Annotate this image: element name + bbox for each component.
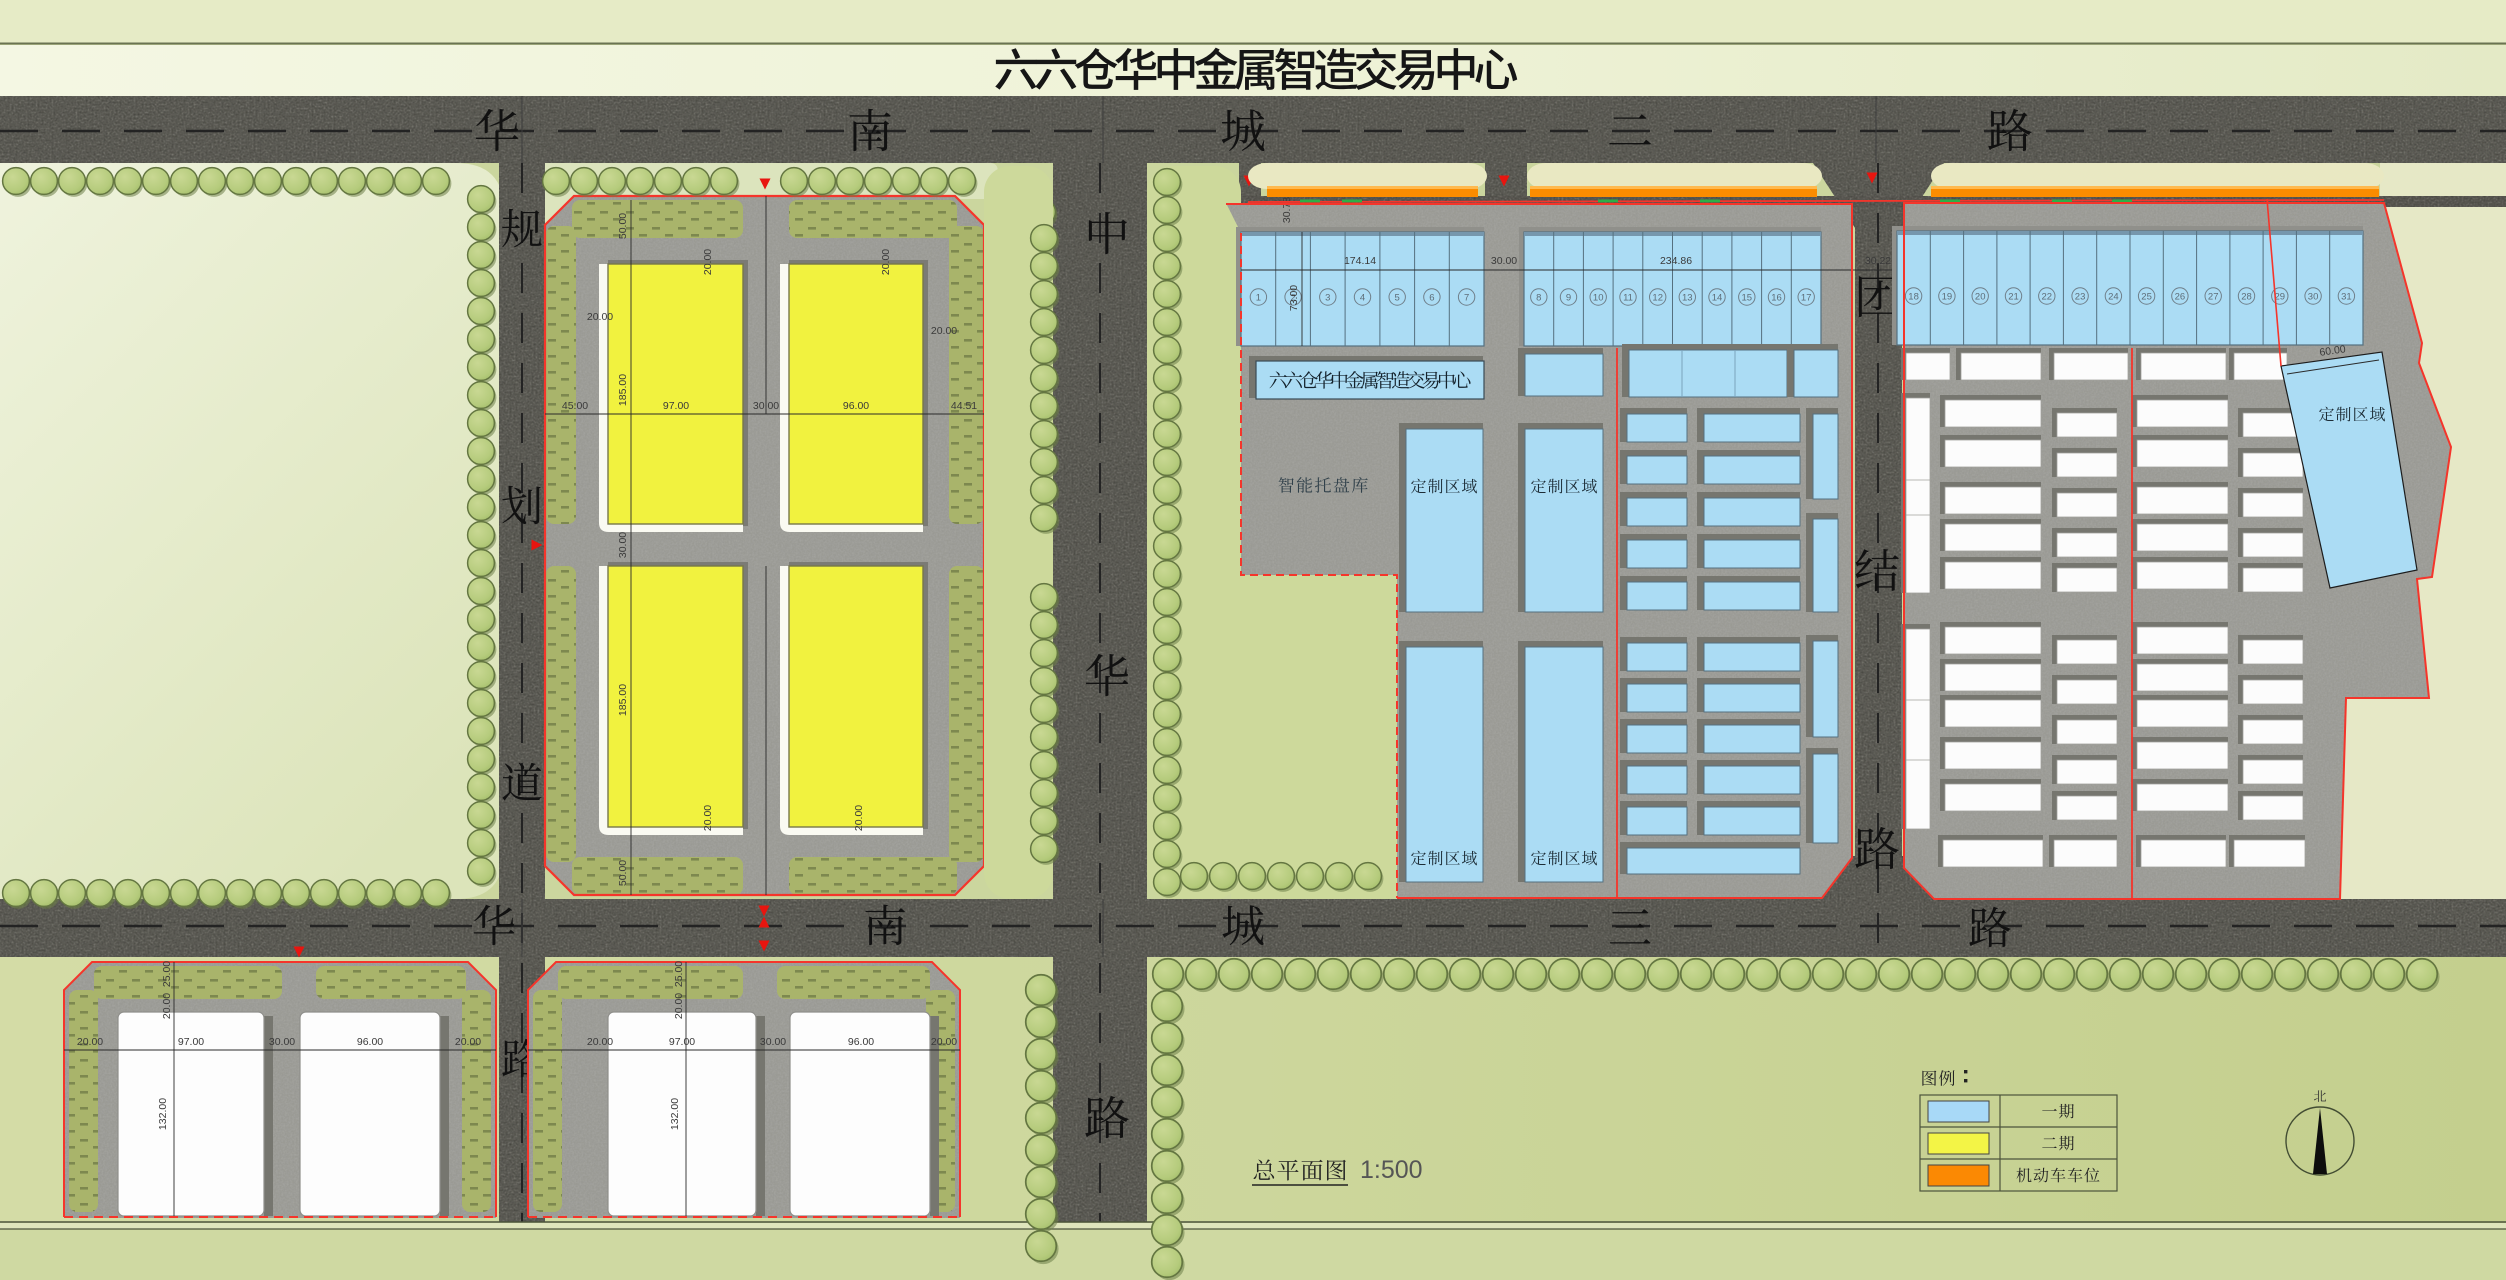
svg-text:30.22: 30.22 [1865, 255, 1891, 267]
svg-text:8: 8 [1536, 292, 1541, 303]
svg-text:25.00: 25.00 [161, 961, 173, 987]
svg-text:14: 14 [1712, 292, 1723, 303]
svg-text:20.00: 20.00 [455, 1036, 481, 1048]
svg-text:20.00: 20.00 [587, 311, 613, 323]
svg-text:20.00: 20.00 [702, 805, 714, 831]
svg-text:22: 22 [2042, 291, 2053, 302]
svg-text:21: 21 [2008, 291, 2019, 302]
svg-text:96.00: 96.00 [357, 1036, 383, 1048]
svg-text:97.00: 97.00 [663, 400, 689, 412]
svg-text:20.00: 20.00 [161, 993, 173, 1019]
svg-text:50.00: 50.00 [617, 213, 629, 239]
svg-text:185.00: 185.00 [617, 374, 629, 406]
svg-text:174.14: 174.14 [1344, 255, 1376, 267]
svg-text:132.00: 132.00 [157, 1098, 169, 1130]
svg-text:30.00: 30.00 [269, 1036, 295, 1048]
svg-text:30: 30 [2308, 291, 2319, 302]
svg-text:185.00: 185.00 [617, 684, 629, 716]
svg-text:30.00: 30.00 [1491, 255, 1517, 267]
svg-text:234.86: 234.86 [1660, 255, 1692, 267]
svg-text:24: 24 [2108, 291, 2119, 302]
svg-text:20: 20 [1975, 291, 1986, 302]
svg-text:15: 15 [1742, 292, 1753, 303]
svg-text:30.00: 30.00 [617, 532, 629, 558]
svg-text:96.00: 96.00 [843, 400, 869, 412]
svg-text:97.00: 97.00 [178, 1036, 204, 1048]
svg-text:132.00: 132.00 [669, 1098, 681, 1130]
svg-text:28: 28 [2241, 291, 2252, 302]
svg-text:9: 9 [1566, 292, 1571, 303]
svg-text:30.00: 30.00 [760, 1036, 786, 1048]
svg-text:20.00: 20.00 [931, 325, 957, 337]
svg-text:13: 13 [1682, 292, 1693, 303]
svg-text:20.00: 20.00 [77, 1036, 103, 1048]
svg-text:1: 1 [1256, 292, 1261, 303]
svg-text:10: 10 [1593, 292, 1604, 303]
svg-text:5: 5 [1395, 292, 1400, 303]
svg-text:12: 12 [1652, 292, 1663, 303]
svg-text:20.00: 20.00 [880, 249, 892, 275]
svg-text:96.00: 96.00 [848, 1036, 874, 1048]
svg-text:26: 26 [2175, 291, 2186, 302]
svg-text:23: 23 [2075, 291, 2086, 302]
svg-text:73.00: 73.00 [1288, 285, 1300, 311]
svg-text:30.00: 30.00 [753, 400, 779, 412]
svg-text:44.51: 44.51 [951, 400, 977, 412]
svg-text:31: 31 [2341, 291, 2352, 302]
svg-text:20.00: 20.00 [931, 1036, 957, 1048]
svg-text:16: 16 [1771, 292, 1782, 303]
svg-text:30.78: 30.78 [1281, 197, 1293, 223]
svg-text:20.00: 20.00 [587, 1036, 613, 1048]
svg-text:50.00: 50.00 [617, 860, 629, 886]
svg-text:19: 19 [1942, 291, 1953, 302]
svg-text:7: 7 [1464, 292, 1469, 303]
svg-text:11: 11 [1623, 292, 1633, 303]
svg-text:1:500: 1:500 [1360, 1156, 1423, 1184]
svg-text:4: 4 [1360, 292, 1365, 303]
svg-text:6: 6 [1429, 292, 1434, 303]
svg-text:97.00: 97.00 [669, 1036, 695, 1048]
svg-text:20.00: 20.00 [673, 993, 685, 1019]
svg-text:18: 18 [1908, 291, 1919, 302]
svg-text:20.00: 20.00 [702, 249, 714, 275]
svg-text:27: 27 [2208, 291, 2219, 302]
svg-text:3: 3 [1325, 292, 1330, 303]
svg-text:25: 25 [2141, 291, 2152, 302]
svg-text:25.00: 25.00 [673, 961, 685, 987]
svg-text:45.00: 45.00 [562, 400, 588, 412]
svg-text:20.00: 20.00 [853, 805, 865, 831]
svg-text:17: 17 [1801, 292, 1812, 303]
